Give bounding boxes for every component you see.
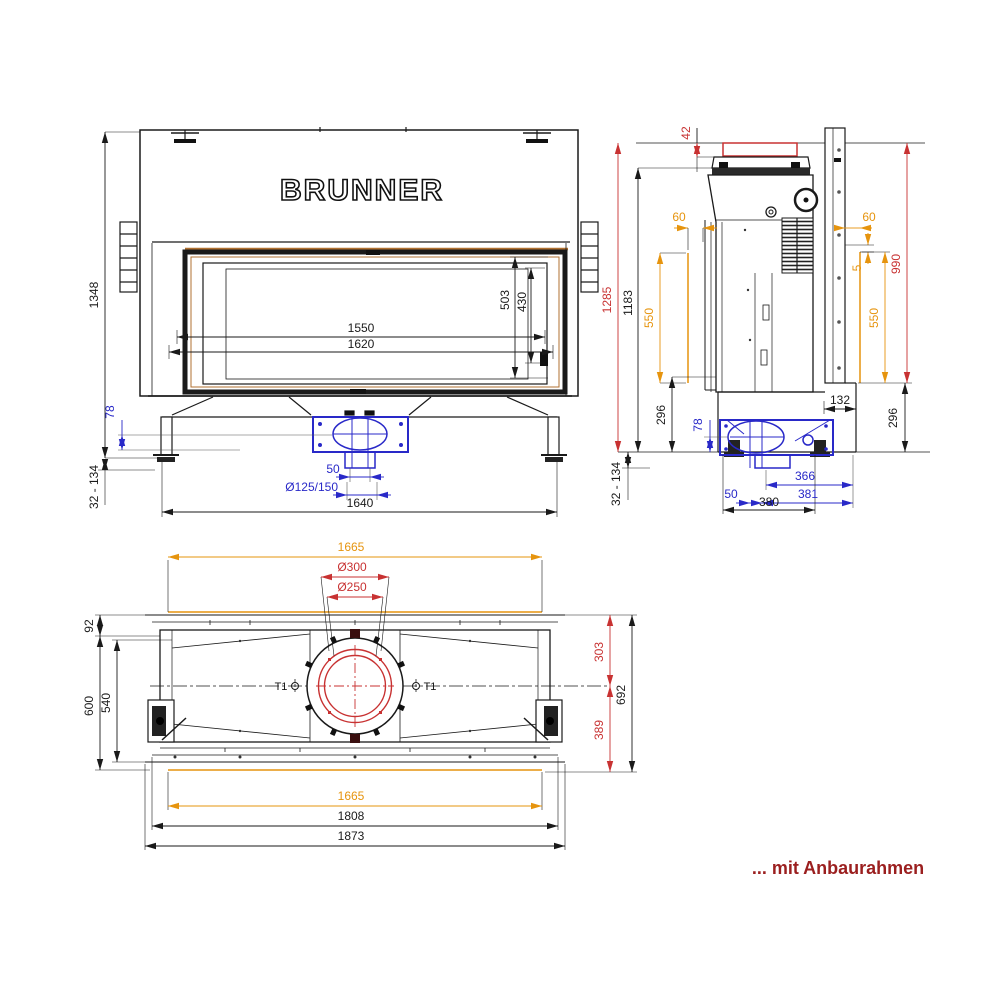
dim-front-glass-width: 1550 bbox=[348, 321, 375, 335]
dim-top-front-edge: 92 bbox=[82, 619, 96, 633]
section-label-left: T1 bbox=[275, 681, 288, 693]
dim-side-rail-height: 990 bbox=[889, 254, 903, 274]
dim-top-flue-front: 303 bbox=[592, 642, 606, 662]
dim-front-plinth: 78 bbox=[103, 405, 117, 419]
dim-side-base-right: 296 bbox=[886, 408, 900, 428]
dim-side-body-height: 1183 bbox=[621, 290, 635, 316]
dim-top-frame-width-bottom: 1665 bbox=[338, 789, 365, 803]
dim-top-flue-outer: Ø300 bbox=[337, 560, 367, 574]
brand-logo: BRUNNER bbox=[280, 174, 444, 207]
caption-anbaurahmen: ... mit Anbaurahmen bbox=[752, 858, 924, 878]
dim-side-offset-left: 60 bbox=[672, 210, 686, 224]
dim-front-width-total: 1640 bbox=[347, 496, 374, 510]
dim-top-flue-back: 389 bbox=[592, 720, 606, 740]
dim-side-frame-top: 42 bbox=[679, 126, 693, 140]
dim-side-slot-right: 550 bbox=[867, 308, 881, 328]
side-mounting-rail bbox=[825, 128, 845, 383]
dim-front-air-pitch: 50 bbox=[326, 462, 340, 476]
side-anbaurahmen-frame bbox=[723, 143, 797, 156]
dim-top-frame-width-top: 1665 bbox=[338, 540, 365, 554]
front-air-connection bbox=[313, 411, 408, 468]
drawing-canvas: BRUNNER 1348 78 32 - 134 503 430 1550 16… bbox=[0, 0, 1000, 1000]
dim-side-frame-height: 1285 bbox=[600, 286, 614, 313]
dim-side-base-left: 296 bbox=[654, 405, 668, 425]
dim-side-air-back2: 381 bbox=[798, 487, 818, 501]
dim-top-depth-total: 692 bbox=[614, 685, 628, 705]
dim-side-leg-range: 32 - 134 bbox=[609, 462, 623, 506]
side-view: 42 1285 1183 60 550 296 78 32 - 134 50 3… bbox=[600, 126, 930, 514]
dim-side-depth-step: 132 bbox=[830, 393, 850, 407]
dim-side-offset-right: 60 bbox=[862, 210, 876, 224]
dim-front-height-total: 1348 bbox=[87, 281, 101, 308]
dim-top-width-total: 1873 bbox=[338, 829, 365, 843]
top-view: 1665 Ø300 Ø250 92 600 540 T1 T1 303 692 … bbox=[82, 540, 637, 850]
dim-top-width-mid: 1808 bbox=[338, 809, 365, 823]
dim-side-depth-total: 380 bbox=[759, 495, 779, 509]
dim-front-glass-h: 503 bbox=[498, 290, 512, 310]
dim-front-air-diameter: Ø125/150 bbox=[285, 480, 338, 494]
section-label-right: T1 bbox=[424, 681, 437, 693]
dim-top-depth-inner: 540 bbox=[99, 693, 113, 713]
dim-side-gap: 5 bbox=[850, 264, 864, 271]
dim-side-air-pitch: 50 bbox=[724, 487, 738, 501]
dim-front-opening-width: 1620 bbox=[348, 337, 375, 351]
front-view: BRUNNER 1348 78 32 - 134 503 430 1550 16… bbox=[87, 127, 598, 517]
dim-front-leg-range: 32 - 134 bbox=[87, 465, 101, 509]
front-door-lock bbox=[540, 352, 548, 366]
dim-top-depth-body: 600 bbox=[82, 696, 96, 716]
dim-side-slot-left: 550 bbox=[642, 308, 656, 328]
technical-drawing-page: BRUNNER 1348 78 32 - 134 503 430 1550 16… bbox=[0, 0, 1000, 1000]
dim-front-glass-h2: 430 bbox=[515, 292, 529, 312]
dim-side-air-back: 366 bbox=[795, 469, 815, 483]
dim-top-flue-inner: Ø250 bbox=[337, 580, 367, 594]
dim-side-plinth: 78 bbox=[691, 418, 705, 432]
